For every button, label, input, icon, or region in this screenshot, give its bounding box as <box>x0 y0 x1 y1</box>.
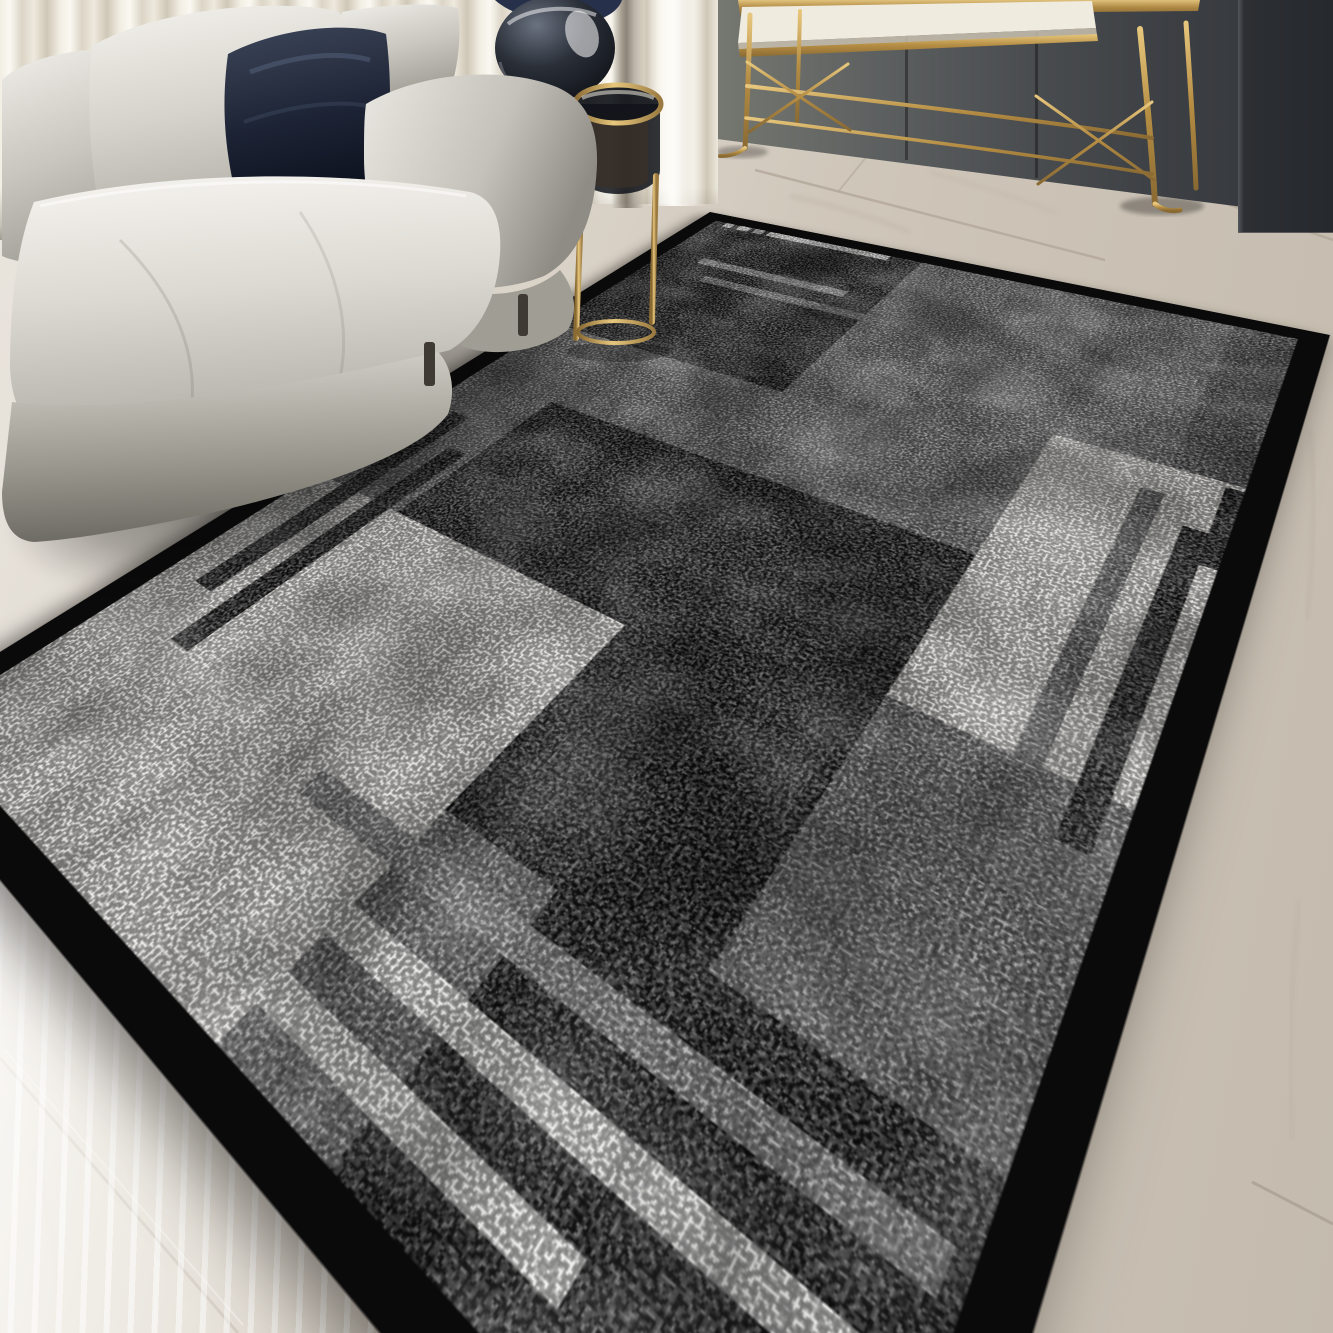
sofa <box>0 0 700 620</box>
tile-seam <box>1252 1182 1333 1224</box>
marble-vein <box>1290 900 1300 1140</box>
sofa-leg <box>518 294 528 336</box>
marble-vein <box>1306 430 1314 620</box>
sofa-leg <box>424 342 435 386</box>
gold-console-table <box>700 0 1260 240</box>
living-room-scene <box>0 0 1333 1333</box>
